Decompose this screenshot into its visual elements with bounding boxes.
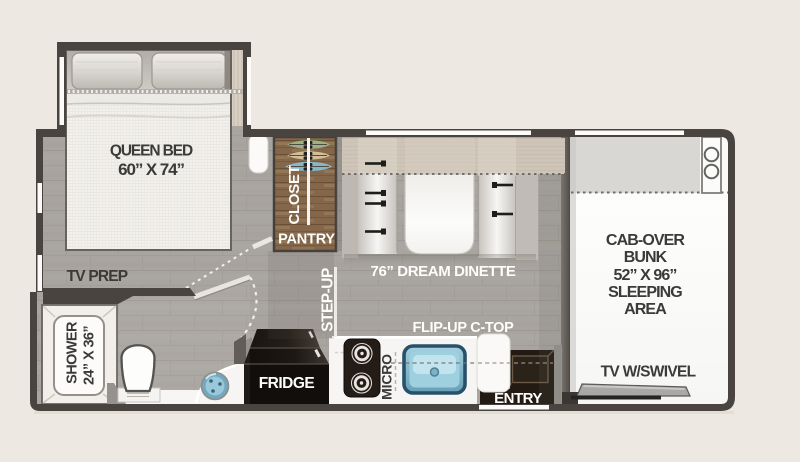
svg-text:MICRO: MICRO bbox=[379, 354, 395, 400]
svg-text:SHOWER: SHOWER bbox=[65, 321, 81, 384]
svg-text:CAB-OVER: CAB-OVER bbox=[606, 232, 685, 249]
svg-text:24” X 36”: 24” X 36” bbox=[82, 326, 98, 385]
svg-text:FRIDGE: FRIDGE bbox=[259, 375, 315, 392]
svg-text:SLEEPING: SLEEPING bbox=[608, 284, 682, 301]
svg-text:AREA: AREA bbox=[624, 301, 667, 318]
svg-text:STEP-UP: STEP-UP bbox=[320, 268, 337, 332]
svg-text:52” X 96”: 52” X 96” bbox=[613, 267, 676, 284]
svg-text:60” X 74”: 60” X 74” bbox=[118, 160, 184, 179]
svg-text:BUNK: BUNK bbox=[624, 249, 668, 266]
svg-text:CLOSET: CLOSET bbox=[286, 165, 303, 224]
svg-text:QUEEN BED: QUEEN BED bbox=[110, 143, 193, 160]
svg-text:PANTRY: PANTRY bbox=[278, 232, 335, 248]
svg-text:76” DREAM DINETTE: 76” DREAM DINETTE bbox=[371, 263, 516, 280]
svg-text:FLIP-UP C-TOP: FLIP-UP C-TOP bbox=[412, 320, 514, 336]
svg-text:TV PREP: TV PREP bbox=[67, 268, 128, 285]
svg-text:TV W/SWIVEL: TV W/SWIVEL bbox=[601, 364, 696, 381]
svg-text:ENTRY: ENTRY bbox=[494, 390, 542, 407]
